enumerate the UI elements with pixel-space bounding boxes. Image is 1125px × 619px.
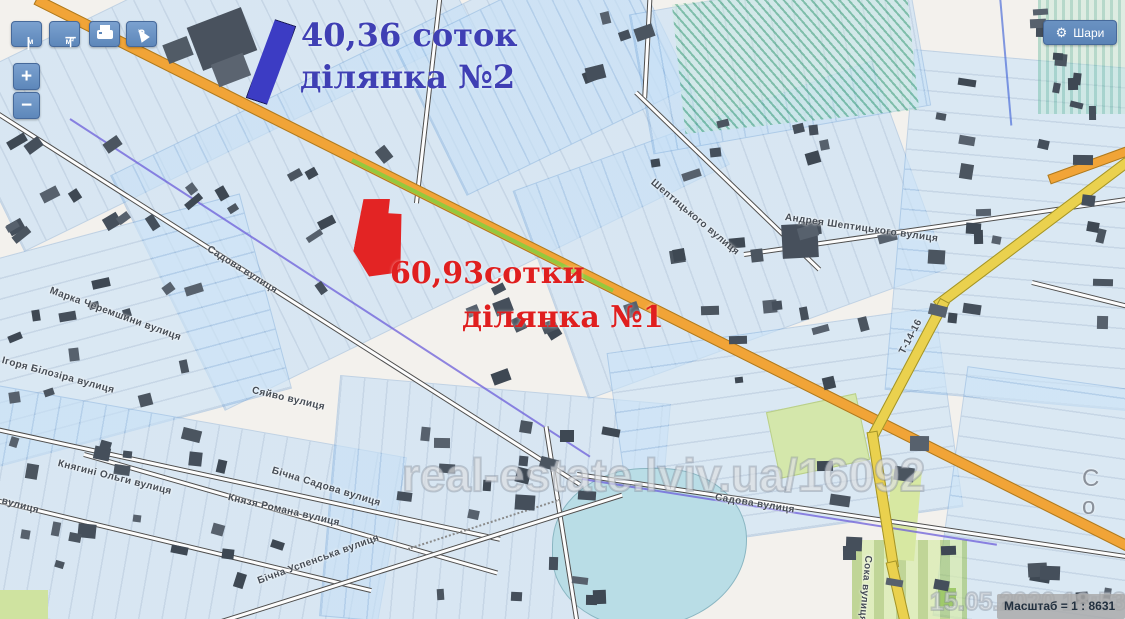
print-button[interactable] [89, 21, 120, 47]
parcel1-area-label: 60,93сотки [390, 256, 585, 291]
measure-area-button[interactable]: ⊤м² [49, 21, 80, 47]
building [772, 300, 783, 310]
gear-icon: ⚙ [1056, 25, 1068, 41]
building [991, 235, 1001, 244]
building [1093, 279, 1113, 287]
building [123, 451, 133, 459]
settlement-label: С о [1082, 465, 1125, 521]
building [511, 591, 522, 601]
building [941, 545, 956, 554]
building [24, 463, 38, 480]
building [701, 306, 719, 315]
building [928, 249, 946, 264]
building [1082, 194, 1096, 207]
map-canvas[interactable]: Садова вулиця Марка Черемшини вулиця Іго… [0, 0, 1125, 619]
building [434, 438, 450, 448]
building [1072, 72, 1081, 85]
building [809, 125, 819, 136]
building [132, 514, 141, 522]
minus-icon: − [21, 95, 32, 117]
zoom-in-button[interactable]: + [13, 63, 40, 90]
building [729, 335, 747, 343]
building [491, 368, 511, 385]
building [1087, 221, 1101, 233]
building [1053, 52, 1063, 60]
layers-button[interactable]: ⚙ Шари [1043, 20, 1117, 45]
building [31, 310, 40, 322]
building [1089, 106, 1097, 120]
building [1052, 82, 1061, 93]
parcel2-name-label: ділянка №2 [300, 58, 515, 96]
green-area [0, 590, 48, 619]
measure-length-button[interactable]: |м [11, 21, 42, 47]
layers-label: Шари [1073, 26, 1104, 40]
scale-text: Масштаб = 1 : 8631 [1004, 599, 1115, 613]
building [189, 452, 203, 467]
help-question: ? [138, 27, 145, 41]
building [947, 312, 957, 323]
building [549, 557, 558, 570]
building [672, 248, 686, 261]
building [519, 421, 532, 434]
building [1073, 155, 1093, 166]
building [8, 391, 20, 403]
building [586, 595, 598, 605]
building [1040, 565, 1060, 580]
building [709, 148, 721, 158]
building [976, 209, 991, 216]
building [436, 588, 444, 599]
street-label: Сяйво вулиця [251, 385, 326, 413]
zoom-out-button[interactable]: − [13, 92, 40, 119]
site-watermark: real-estate.lviv.ua/16092 [402, 448, 925, 502]
building [846, 536, 862, 551]
building [965, 222, 980, 234]
plus-icon: + [21, 66, 32, 88]
identify-button[interactable]: ? [126, 21, 157, 47]
parcel1-name-label: ділянка №1 [462, 300, 664, 335]
building [467, 509, 479, 520]
green-area [1038, 0, 1125, 114]
printer-icon [97, 30, 113, 39]
building [221, 548, 234, 559]
parcel2-area-label: 40,36 соток [301, 16, 517, 54]
building [1097, 315, 1108, 328]
building [651, 159, 661, 168]
building [935, 112, 946, 121]
building [560, 430, 574, 442]
building [420, 426, 430, 440]
building [1033, 9, 1049, 16]
building [734, 376, 742, 383]
building [750, 248, 763, 263]
building [68, 347, 80, 361]
building [21, 530, 32, 540]
building [959, 163, 974, 180]
